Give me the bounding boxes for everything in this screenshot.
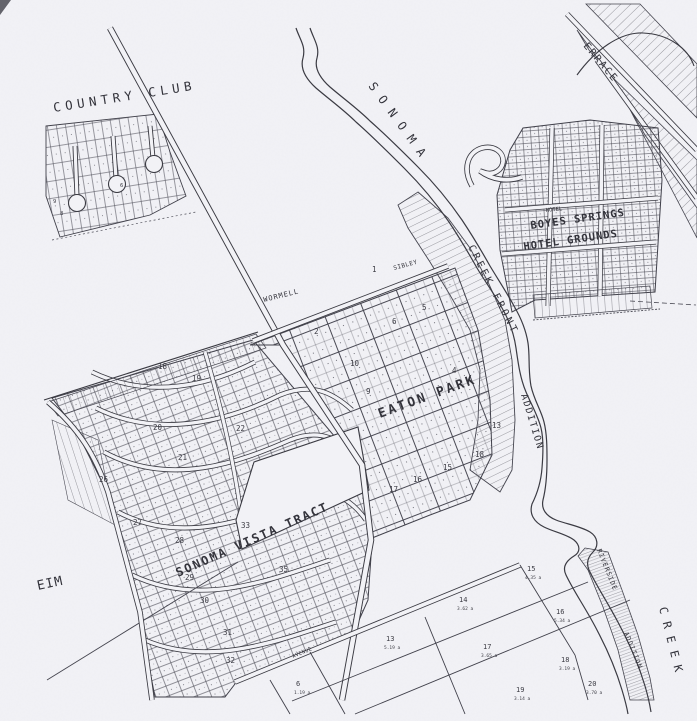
block-number: 18: [475, 450, 485, 459]
block-number: 1: [372, 265, 377, 274]
block-number: 30: [200, 596, 210, 605]
lot-number: 8: [60, 211, 63, 217]
block-number: 19: [192, 374, 201, 383]
block-number: 17: [389, 485, 398, 494]
block-number: 2: [314, 327, 319, 336]
block-number: 22: [236, 424, 245, 433]
block-number: 28: [175, 536, 185, 545]
block-number: 31: [223, 628, 232, 637]
block-number: 9: [366, 387, 371, 396]
lot-number: 6: [120, 183, 123, 189]
block-number: 16: [413, 475, 423, 484]
block-number: 20: [153, 423, 163, 432]
block-number: 27: [133, 518, 142, 527]
block-number: 5: [422, 303, 427, 312]
block-number: 6: [392, 317, 397, 326]
block-number: 21: [178, 453, 187, 462]
block-number: 32: [226, 656, 235, 665]
block-number: 33: [241, 521, 250, 530]
scanned-plat-map: COUNTRY CLUB SONOMA CREEK ERRACE BOYES S…: [0, 0, 697, 721]
block-number: 4: [452, 366, 457, 375]
plat-map-canvas: COUNTRY CLUB SONOMA CREEK ERRACE BOYES S…: [0, 0, 697, 721]
block-number: 10: [350, 359, 360, 368]
block-number: 35: [279, 565, 288, 574]
block-number: 18: [158, 362, 168, 371]
block-number: 29: [185, 573, 194, 582]
block-number: 13: [492, 421, 501, 430]
block-number: 26: [99, 475, 109, 484]
lot-number: 9: [53, 199, 56, 205]
block-number: 15: [443, 463, 452, 472]
